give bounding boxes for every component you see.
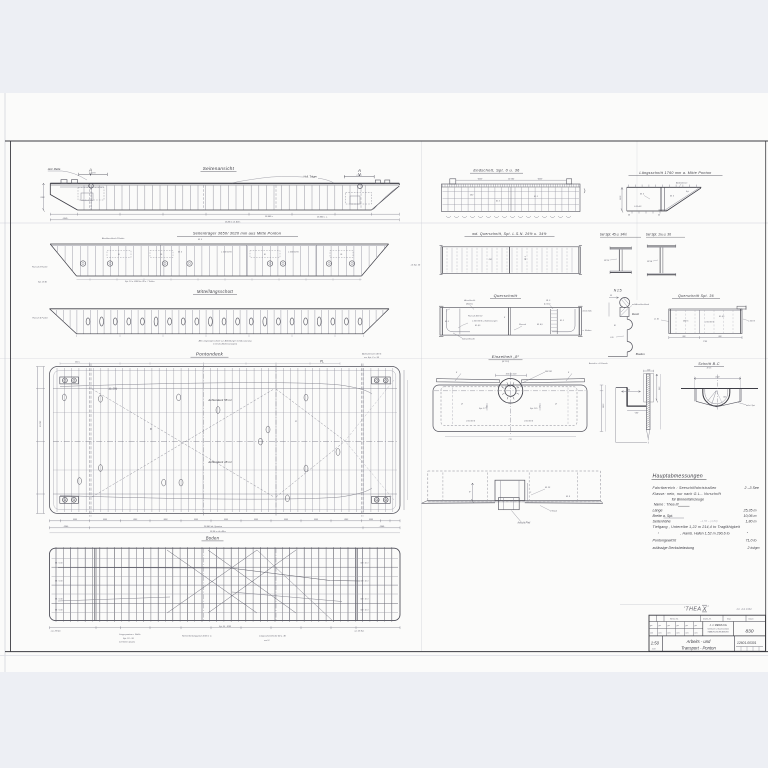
svg-text:Flansch 300×10: Flansch 300×10: [468, 315, 483, 318]
svg-text:23. Juli 1962: 23. Juli 1962: [736, 607, 753, 611]
svg-text:PL: PL: [320, 359, 324, 363]
svg-text:~2845~: ~2845~: [62, 217, 69, 220]
svg-text:Transport - Ponton: Transport - Ponton: [681, 646, 716, 651]
svg-text:Längsschweißnaht 34 u. 36: Längsschweißnaht 34 u. 36: [259, 634, 287, 637]
svg-text:Holl. Träger: Holl. Träger: [304, 174, 317, 178]
svg-text:„: „: [746, 530, 748, 534]
svg-text:26 440 üb. Spanten: 26 440 üb. Spanten: [203, 525, 223, 528]
svg-text:tiefst. Spt.: tiefst. Spt.: [746, 404, 756, 407]
svg-text:L 65: L 65: [610, 337, 613, 339]
svg-text:~4500~: ~4500~: [537, 177, 543, 180]
svg-text:3060: 3060: [194, 519, 198, 521]
svg-text:L 65×50×5: L 65×50×5: [705, 321, 715, 324]
svg-text:12.5: 12.5: [676, 633, 679, 635]
svg-text:Bl. 4,5: Bl. 4,5: [537, 323, 544, 326]
svg-text:84 × 9,5 l: 84 × 9,5 l: [55, 609, 63, 612]
svg-text:, Hamb. Hafen 1,52 m 290,6 t: , Hamb. Hafen 1,52 m 290,6 to: [681, 531, 730, 535]
svg-text:Spt. 10 u. 3060 bis 35 a. 7 Fe: Spt. 10 u. 3060 bis 35 a. 7 Felder: [125, 280, 155, 283]
svg-text:84 × 9,5 l: 84 × 9,5 l: [361, 562, 369, 565]
svg-text:L 100×50×6: L 100×50×6: [221, 251, 233, 254]
svg-text:Pontondeck: Pontondeck: [196, 352, 224, 357]
svg-text:296×5: 296×5: [682, 320, 689, 323]
svg-text:gez: gez: [686, 625, 689, 627]
svg-text:12.5: 12.5: [658, 633, 661, 635]
svg-text:wt. Bl.: wt. Bl.: [654, 318, 660, 321]
svg-text:Deck: Deck: [632, 312, 640, 316]
svg-text:Werkst.-Nr.: Werkst.-Nr.: [670, 618, 679, 621]
svg-text:Holl. Maße: Holl. Maße: [48, 167, 61, 171]
svg-text:Seitenhöhe: Seitenhöhe: [653, 519, 671, 523]
svg-text:Zeichn.-Nr.: Zeichn.-Nr.: [702, 619, 712, 621]
svg-text:L 100×50×6: L 100×50×6: [288, 251, 300, 254]
svg-text:2 –3 See: 2 –3 See: [744, 486, 759, 490]
svg-text:Spt. 35 · 3060: Spt. 35 · 3060: [219, 625, 232, 628]
svg-text:Längsschnitt 1760 mm a. Mitt: Längsschnitt 1760 mm a. Mitte Ponton: [639, 171, 711, 175]
svg-text:bei Spt. 45 u. 34½: bei Spt. 45 u. 34½: [600, 232, 627, 236]
svg-text:Achterdeck 18 m²: Achterdeck 18 m²: [207, 460, 233, 464]
svg-text:3060: 3060: [254, 519, 258, 521]
svg-text:A=3½: A=3½: [108, 387, 118, 391]
svg-text:84 × 9,5 l: 84 × 9,5 l: [361, 580, 369, 583]
svg-text:zw. Spt. 2 u. 35: zw. Spt. 2 u. 35: [363, 356, 380, 359]
svg-text:2 970: 2 970: [89, 173, 96, 175]
svg-text:Gepr.: Gepr.: [727, 619, 732, 621]
svg-text:in Decks (Bodenwrangen): in Decks (Bodenwrangen): [213, 343, 237, 346]
svg-text:Einzelheit „8“: Einzelheit „8“: [492, 354, 520, 359]
svg-text:Klasse: nein, nur nach G.L.-: Klasse: nein, nur nach G.L.- Vorschrift: [653, 492, 722, 496]
svg-text:Tiefgang , Unterelbe 1,22 m: Tiefgang , Unterelbe 1,22 m 214,4 to Tra…: [653, 525, 741, 529]
svg-text:gez: gez: [668, 625, 671, 627]
svg-text:3060: 3060: [344, 519, 348, 521]
svg-text:M 1:5: M 1:5: [707, 367, 712, 369]
svg-text:Alle Längsträgerschotte aus: Alle Längsträgerschotte aus Abbildungen …: [198, 339, 253, 342]
svg-text:3060: 3060: [224, 519, 228, 521]
svg-text:Seitenträger 3650/ 3020 mm: Seitenträger 3650/ 3020 mm aus Mitte Pon…: [193, 230, 281, 235]
svg-text:Bl. 20: Bl. 20: [545, 487, 551, 489]
svg-text:26 440 a.: 26 440 a.: [264, 215, 274, 218]
svg-text:~2845~: ~2845~: [63, 525, 70, 528]
svg-text:Name : Thea III: Name : Thea III: [654, 502, 679, 506]
svg-text:60: 60: [628, 390, 630, 392]
svg-text:A: A: [294, 420, 297, 423]
svg-text:Achterdeck 58 m²: Achterdeck 58 m²: [207, 398, 233, 402]
svg-text:10 060: 10 060: [508, 178, 515, 180]
svg-text:12.5: 12.5: [685, 633, 688, 635]
svg-text:mit Nieten (zopf.): mit Nieten (zopf.): [119, 641, 135, 644]
svg-text:~180~: ~180~: [634, 413, 639, 415]
svg-text:1:50: 1:50: [651, 641, 660, 646]
svg-text:12.5: 12.5: [667, 633, 670, 635]
svg-text:NW 250: NW 250: [545, 371, 553, 373]
svg-text:Seitenansicht: Seitenansicht: [203, 166, 235, 171]
svg-text:2 970: 2 970: [355, 175, 362, 177]
svg-text:~2646~: ~2646~: [379, 525, 386, 528]
svg-text:Endschott, Spt. 0 u. 36: Endschott, Spt. 0 u. 36: [473, 168, 520, 173]
svg-text:Abschlussbl.: Abschlussbl.: [463, 299, 476, 302]
svg-text:3060: 3060: [133, 519, 137, 521]
svg-text:Mittellängsschott: Mittellängsschott: [197, 289, 234, 294]
svg-text:auf Abschlussblech: auf Abschlussblech: [632, 303, 650, 306]
svg-text:Nietverbindungsplan 4,56 m w: Nietverbindungsplan 4,56 m w.: [182, 634, 212, 637]
svg-text:zulässige Decksbelastung: zulässige Decksbelastung: [652, 546, 695, 550]
svg-text:26,36 m üb. Alles: 26,36 m üb. Alles: [209, 530, 226, 533]
svg-text:Hauptabmessungen: Hauptabmessungen: [653, 474, 703, 480]
svg-text:3060: 3060: [284, 519, 288, 521]
svg-text:Abdeckleisten 40×5: Abdeckleisten 40×5: [361, 353, 382, 356]
svg-text:Bl. 4,5: Bl. 4,5: [475, 324, 481, 327]
svg-text:(Leiter): (Leiter): [544, 302, 551, 305]
svg-text:Abschlussblech 4 Punkte: Abschlussblech 4 Punkte: [101, 237, 125, 240]
svg-text:Spt. 35 Bl.: Spt. 35 Bl.: [38, 281, 48, 284]
svg-text:„: „: [657, 530, 659, 534]
svg-text:gez: gez: [659, 625, 662, 627]
svg-text:140: 140: [723, 396, 726, 399]
svg-text:Querschnitt Spt. 36: Querschnitt Spt. 36: [678, 294, 714, 298]
svg-text:8": 8": [469, 492, 471, 494]
svg-text:3060: 3060: [314, 519, 318, 521]
svg-text:N 1:5: N 1:5: [614, 288, 622, 292]
svg-text:Deck Stb.: Deck Stb.: [583, 309, 593, 312]
svg-text:Längsspanten u. Stöße: Längsspanten u. Stöße: [119, 633, 141, 636]
svg-text:Ansicht Pfeil: Ansicht Pfeil: [517, 522, 531, 525]
svg-text:3060: 3060: [103, 519, 107, 521]
svg-text:~1,55 ~ (1,80): ~1,55 ~ (1,80): [700, 519, 718, 523]
svg-text:25,35 m: 25,35 m: [743, 509, 757, 513]
svg-text:L 100×50×6 u. Bodenwrangen: L 100×50×6 u. Bodenwrangen: [472, 320, 497, 323]
svg-text:gez: gez: [650, 625, 653, 627]
svg-text:4 Stück: 4 Stück: [550, 510, 558, 513]
svg-text:Bl. 4,5: Bl. 4,5: [719, 315, 725, 318]
svg-text:aus 26 Spt.: aus 26 Spt.: [51, 629, 62, 632]
svg-text:u. Boden: u. Boden: [583, 330, 593, 332]
svg-text:84 × 9,5 l: 84 × 9,5 l: [361, 609, 369, 612]
svg-text:J. J. MEWS KG: J. J. MEWS KG: [710, 624, 727, 627]
svg-text:50: 50: [610, 295, 612, 297]
svg-text:100: 100: [647, 369, 650, 371]
svg-text:Schnitt B-C: Schnitt B-C: [698, 362, 720, 366]
svg-text:Arbeits - und: Arbeits - und: [686, 639, 711, 644]
svg-text:500 mm 500: 500 mm 500: [506, 374, 517, 376]
svg-text:3060: 3060: [369, 519, 373, 521]
svg-text:84 × 9,5 l: 84 × 9,5 l: [361, 598, 369, 601]
svg-text:Querschnitt: Querschnitt: [494, 293, 518, 298]
svg-text:A: A: [357, 168, 361, 173]
svg-text:10 060: 10 060: [40, 420, 42, 427]
svg-text:~4500~: ~4500~: [477, 177, 483, 180]
svg-text:Schweißnaht: Schweißnaht: [462, 337, 475, 340]
svg-text:A: A: [88, 167, 92, 172]
svg-text:250 a.: 250 a.: [74, 362, 81, 364]
svg-text:71,0 to: 71,0 to: [746, 539, 757, 543]
svg-text:880: 880: [719, 336, 722, 338]
svg-text:12601-00301: 12601-00301: [737, 641, 757, 645]
svg-text:Flansch: Flansch: [519, 324, 527, 326]
svg-text:NP 24: NP 24: [647, 260, 652, 263]
svg-text:L 65×50×6: L 65×50×6: [466, 420, 476, 423]
svg-text:bei Spt. 1¼ u. 36: bei Spt. 1¼ u. 36: [646, 232, 671, 236]
svg-text:L 65×50×6: L 65×50×6: [524, 420, 534, 423]
svg-text:Breite a. Spt.: Breite a. Spt.: [653, 514, 674, 518]
svg-text:880: 880: [683, 336, 686, 338]
svg-text:gez: gez: [677, 625, 680, 627]
svg-text:Fahrtbereich : Seeschiffahrts: Fahrtbereich : Seeschiffahrtstraßen: [653, 486, 717, 490]
svg-text:Pontongewicht: Pontongewicht: [653, 539, 678, 543]
svg-text:3060: 3060: [73, 519, 77, 521]
svg-text:84 × 9,5 l: 84 × 9,5 l: [55, 580, 63, 583]
svg-text:12.5: 12.5: [650, 633, 653, 635]
svg-text:3060: 3060: [164, 519, 168, 521]
svg-text:L 65×50: L 65×50: [634, 205, 642, 208]
svg-text:10,06 m: 10,06 m: [744, 514, 757, 518]
svg-text:Datum: Datum: [749, 618, 755, 621]
svg-text:'THEA: 'THEA: [684, 607, 701, 613]
svg-text:cm 5 !: cm 5 !: [264, 640, 270, 642]
svg-text:gez: gez: [695, 625, 698, 627]
svg-text:12.5: 12.5: [694, 633, 697, 635]
svg-text:(Stoße): (Stoße): [466, 302, 473, 305]
svg-text:1,80 m: 1,80 m: [746, 519, 757, 523]
svg-text:Spt. 10 - 35: Spt. 10 - 35: [123, 637, 135, 640]
svg-text:Boden: Boden: [636, 352, 645, 356]
svg-text:84 × 9,5 l: 84 × 9,5 l: [55, 598, 63, 601]
svg-text:Flansch 4 Punkte: Flansch 4 Punkte: [32, 266, 48, 269]
svg-text:Boden: Boden: [206, 535, 220, 540]
svg-text:2 to/qm: 2 to/qm: [747, 546, 760, 550]
svg-text:für Binnenfahrzeuge: für Binnenfahrzeuge: [672, 497, 704, 501]
svg-text:26 440 ü. a.: 26 440 ü. a.: [316, 215, 328, 218]
svg-text:(M 1:10): (M 1:10): [502, 361, 509, 363]
svg-text:aus 26 Spt.: aus 26 Spt.: [354, 629, 365, 632]
svg-text:830: 830: [745, 628, 753, 634]
svg-text:Abdeckleiste: Abdeckleiste: [675, 181, 688, 184]
svg-text:Länge: Länge: [653, 509, 663, 513]
svg-text:alt Spt. 26: alt Spt. 26: [411, 264, 421, 267]
svg-text:26,46 m üb. Alles: 26,46 m üb. Alles: [224, 221, 240, 224]
svg-text:Flansch 4 Punkte: Flansch 4 Punkte: [32, 317, 48, 320]
svg-text:Ansicht a. d. Flansch: Ansicht a. d. Flansch: [588, 362, 608, 365]
svg-text:L 100×9: L 100×9: [748, 320, 756, 323]
svg-text:wd. Querschnitt, Spt. L.S.N. 2: wd. Querschnitt, Spt. L.S.N. 26½ u. 34½: [472, 232, 546, 236]
svg-text:84 × 9,5 l: 84 × 9,5 l: [55, 562, 63, 565]
